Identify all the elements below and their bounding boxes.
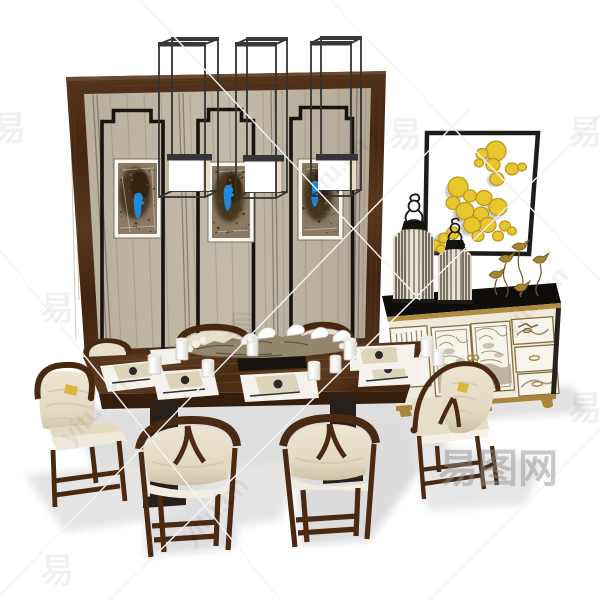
svg-text:易: 易	[568, 114, 600, 152]
svg-text:易: 易	[40, 552, 74, 590]
svg-text:易图网: 易图网	[438, 447, 558, 491]
svg-text:易: 易	[568, 390, 600, 428]
svg-text:易: 易	[0, 110, 26, 148]
svg-text:易: 易	[40, 290, 74, 328]
svg-text:易: 易	[226, 310, 260, 348]
svg-text:易: 易	[388, 116, 422, 154]
